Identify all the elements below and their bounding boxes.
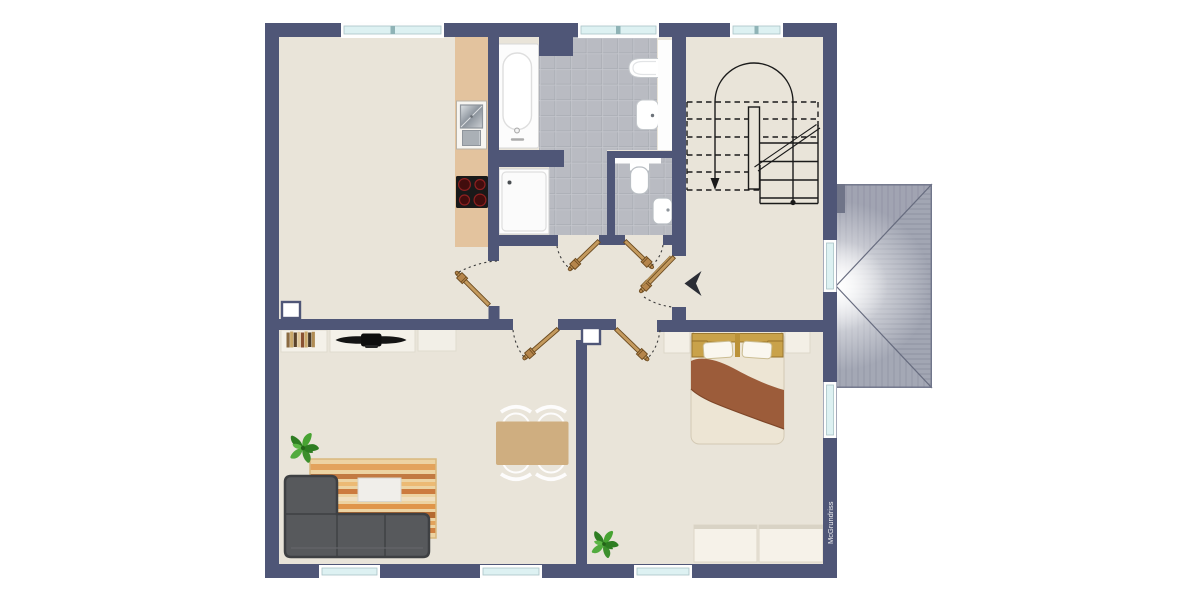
svg-text:McGrundriss: McGrundriss (826, 501, 835, 544)
